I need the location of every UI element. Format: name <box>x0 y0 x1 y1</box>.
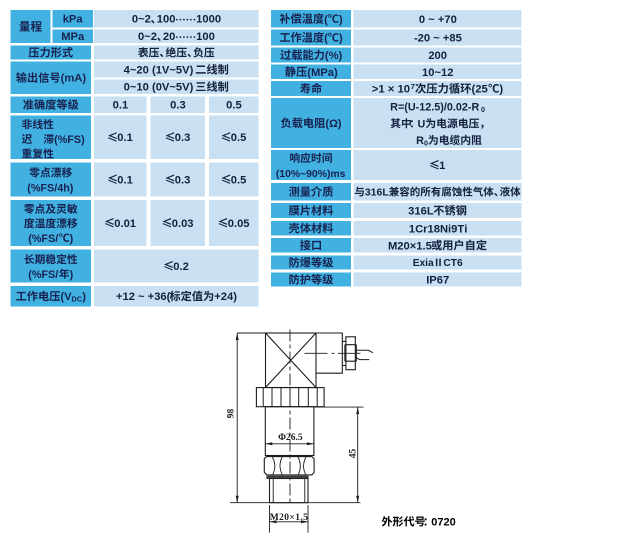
svg-text:0.3: 0.3 <box>170 100 186 112</box>
svg-text:0.03: 0.03 <box>172 218 194 230</box>
svg-text:IP67: IP67 <box>426 275 449 287</box>
svg-text:0~2: 0~2 <box>138 31 157 43</box>
svg-text:0.3: 0.3 <box>175 132 191 144</box>
svg-text:20: 20 <box>163 31 175 43</box>
svg-text:0.01: 0.01 <box>114 218 136 230</box>
svg-text:(%FS): (%FS) <box>54 134 85 146</box>
svg-text:0: 0 <box>481 106 485 114</box>
svg-text:100: 100 <box>157 14 176 26</box>
svg-text:): ) <box>70 269 74 281</box>
svg-text:(: ( <box>324 33 328 45</box>
svg-text:98: 98 <box>226 409 236 419</box>
svg-text:0.2: 0.2 <box>173 261 189 273</box>
svg-text:): ) <box>82 291 86 303</box>
svg-text:0.05: 0.05 <box>228 218 250 230</box>
svg-text:(mA): (mA) <box>61 73 87 85</box>
svg-text:>1 × 10: >1 × 10 <box>372 84 410 96</box>
svg-text:0.5: 0.5 <box>231 132 247 144</box>
svg-text:(25: (25 <box>471 84 487 96</box>
svg-text:0.1: 0.1 <box>117 132 133 144</box>
svg-text:R: R <box>416 135 424 147</box>
svg-text:(10%~90%)ms: (10%~90%)ms <box>276 169 346 180</box>
svg-text:): ) <box>338 118 342 130</box>
svg-text:45: 45 <box>349 449 359 459</box>
svg-text:): ) <box>339 14 343 26</box>
svg-text:(%): (%) <box>325 50 343 62</box>
svg-text:Φ26.5: Φ26.5 <box>278 433 303 443</box>
svg-text:(: ( <box>324 14 328 26</box>
svg-text:0.1: 0.1 <box>117 175 133 187</box>
svg-text:M20×1.5: M20×1.5 <box>270 513 309 523</box>
svg-text:0.1: 0.1 <box>113 100 129 112</box>
svg-text:200: 200 <box>428 50 447 62</box>
svg-text:(MPa): (MPa) <box>307 67 338 79</box>
svg-text:R=(U-12.5)/0.02-R: R=(U-12.5)/0.02-R <box>390 102 479 114</box>
svg-text:(%FS/: (%FS/ <box>28 233 58 245</box>
svg-text:316L: 316L <box>365 187 390 199</box>
svg-text:MPa: MPa <box>61 31 85 43</box>
svg-text:-20 ~ +85: -20 ~ +85 <box>414 33 462 45</box>
svg-text:100: 100 <box>196 31 215 43</box>
svg-text:Ω: Ω <box>329 118 338 130</box>
svg-text:+24): +24) <box>214 291 237 303</box>
svg-text:kPa: kPa <box>63 14 84 26</box>
svg-text:): ) <box>339 33 343 45</box>
svg-text:7: 7 <box>411 82 415 91</box>
svg-text:(%FS/: (%FS/ <box>28 269 58 281</box>
svg-text:0~2: 0~2 <box>132 14 151 26</box>
svg-text:): ) <box>499 84 503 96</box>
svg-text:U: U <box>417 118 425 130</box>
svg-text:DC: DC <box>71 295 82 304</box>
svg-text:0720: 0720 <box>431 517 455 529</box>
svg-text:M20×1.5: M20×1.5 <box>388 240 432 252</box>
svg-text:10~12: 10~12 <box>422 67 453 79</box>
svg-text:0.3: 0.3 <box>175 175 191 187</box>
svg-text:0: 0 <box>424 139 428 147</box>
svg-text:0.5: 0.5 <box>231 175 247 187</box>
svg-text:316L: 316L <box>408 206 434 218</box>
svg-text:(%FS/4h): (%FS/4h) <box>27 182 74 194</box>
svg-text:Exia: Exia <box>413 258 434 269</box>
svg-text:): ) <box>70 233 74 245</box>
svg-text:(V: (V <box>60 291 72 303</box>
svg-text:1: 1 <box>439 160 445 172</box>
svg-text:1000: 1000 <box>196 14 221 26</box>
svg-text:CT6: CT6 <box>443 258 463 269</box>
svg-text:0 ~ +70: 0 ~ +70 <box>419 14 457 26</box>
svg-text:0~10 (0V~5V): 0~10 (0V~5V) <box>124 82 194 94</box>
svg-text:4~20 (1V~5V): 4~20 (1V~5V) <box>124 65 194 77</box>
svg-text:+12 ~ +36(: +12 ~ +36( <box>116 291 171 303</box>
svg-text:1Cr18Ni9Ti: 1Cr18Ni9Ti <box>409 223 467 235</box>
svg-text:0.5: 0.5 <box>226 100 242 112</box>
